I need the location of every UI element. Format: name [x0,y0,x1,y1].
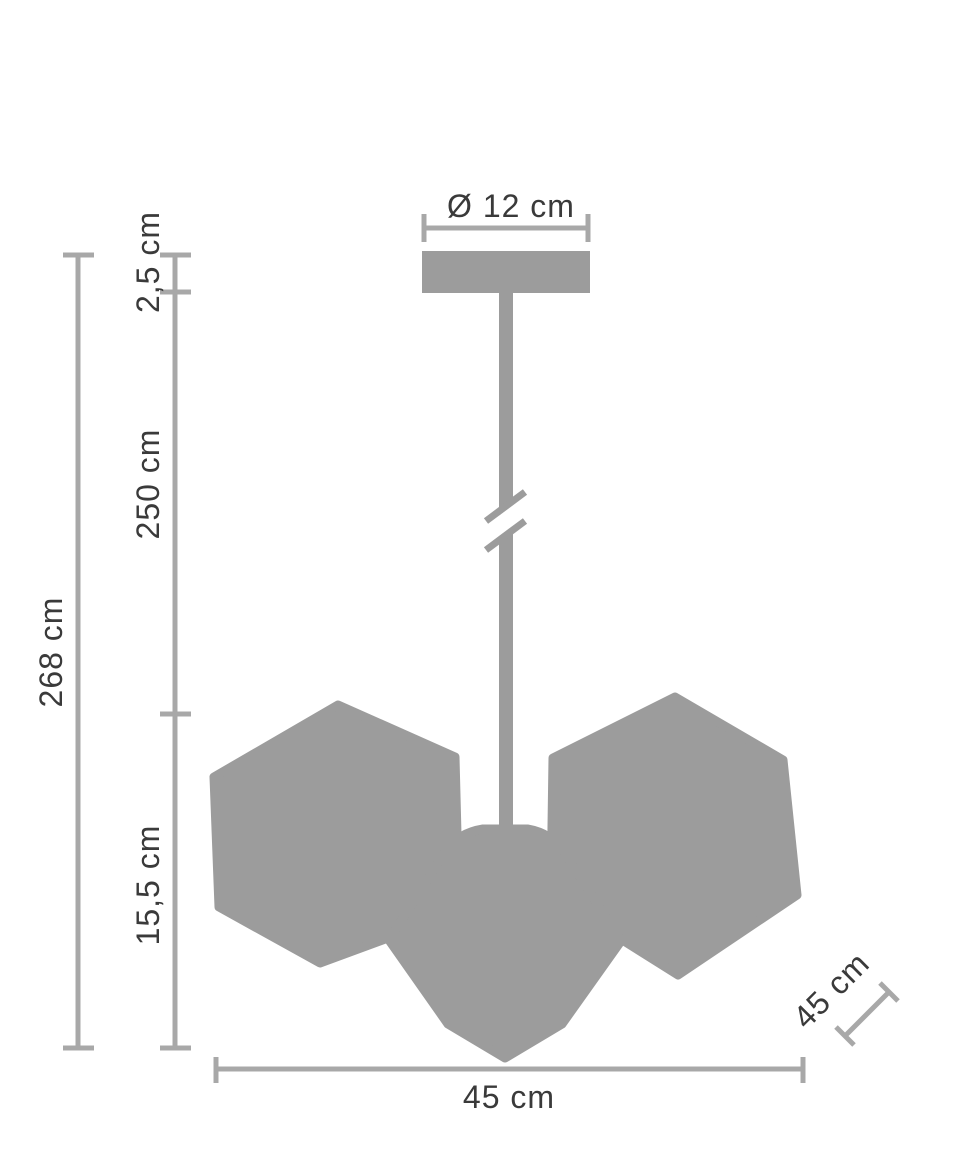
dimension-diagram: Ø 12 cm 268 cm 2,5 cm 250 cm 15,5 cm 45 … [0,0,970,1163]
pendant-lamp-silhouette [214,251,797,1058]
width-dimension: 45 cm [215,1057,804,1115]
suspension-length-label: 250 cm [130,429,166,540]
depth-label: 45 cm [786,945,877,1036]
total-height-dimension: 268 cm [33,253,94,1050]
section-heights-dimension: 2,5 cm 250 cm 15,5 cm [130,211,191,1050]
canopy-diameter-dimension: Ø 12 cm [422,188,590,242]
lamp-dimension-drawing: Ø 12 cm 268 cm 2,5 cm 250 cm 15,5 cm 45 … [0,0,970,1163]
width-label: 45 cm [463,1079,555,1115]
rod-shape [499,292,513,838]
canopy-height-label: 2,5 cm [130,211,166,313]
depth-dimension: 45 cm [786,945,898,1045]
depth-line [845,992,889,1036]
canopy-diameter-label: Ø 12 cm [447,188,575,224]
total-height-label: 268 cm [33,597,69,708]
shade-height-label: 15,5 cm [130,825,166,946]
canopy-shape [422,251,590,293]
